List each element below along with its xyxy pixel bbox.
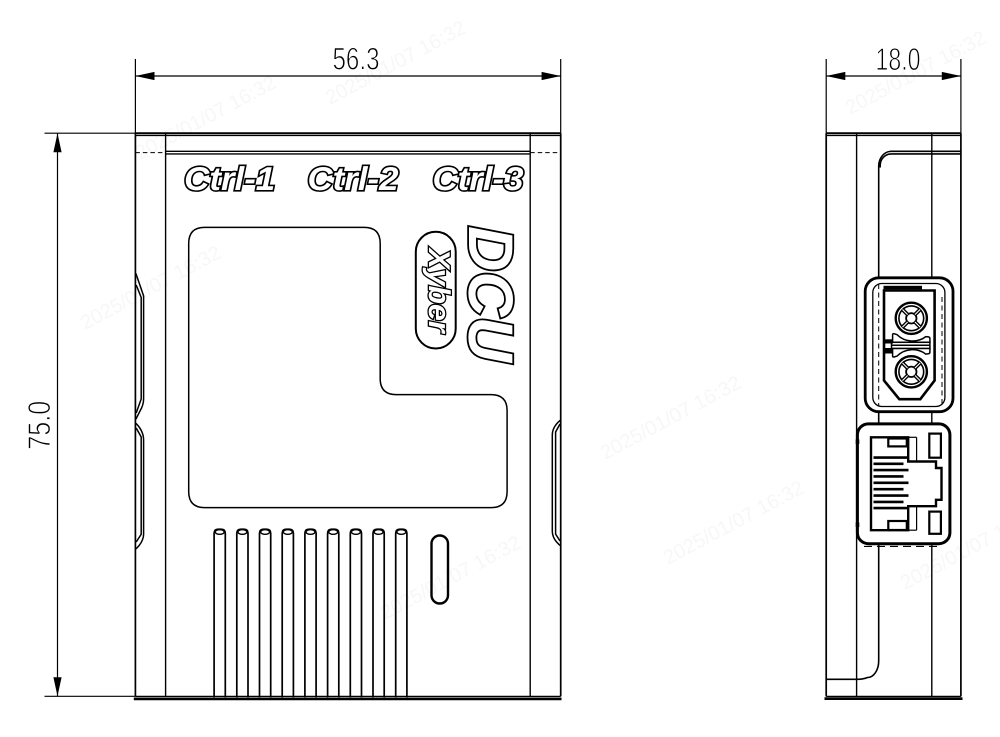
svg-text:Ctrl-3: Ctrl-3 [433, 160, 524, 197]
svg-text:DCU: DCU [455, 226, 525, 363]
svg-text:75.0: 75.0 [21, 401, 57, 450]
svg-text:56.3: 56.3 [333, 41, 380, 77]
svg-text:18.0: 18.0 [876, 41, 921, 77]
svg-text:Ctrl-2: Ctrl-2 [308, 160, 400, 197]
svg-text:Xyber: Xyber [422, 247, 455, 335]
svg-text:Ctrl-1: Ctrl-1 [184, 160, 275, 197]
